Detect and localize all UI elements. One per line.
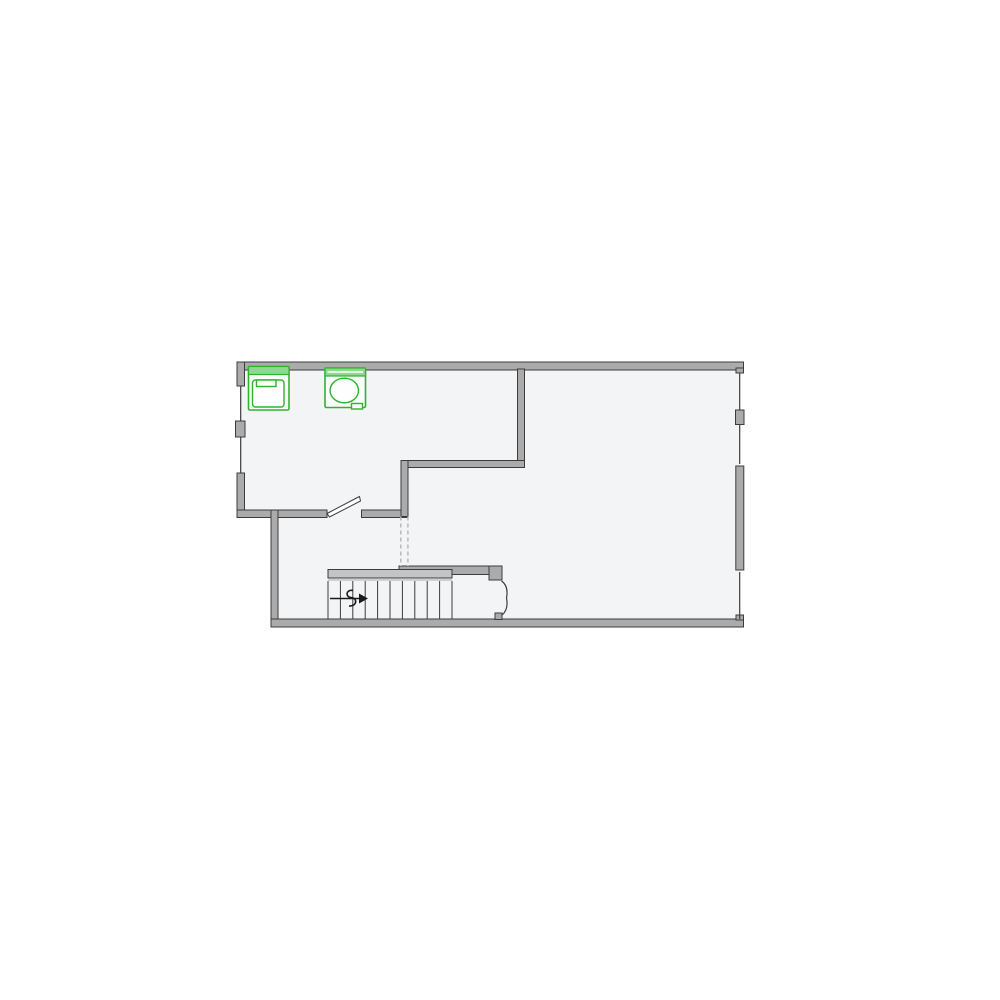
lower-left-wall: [271, 510, 278, 627]
floor-plan-canvas: [0, 0, 1000, 1000]
washer-control-strip: [249, 367, 290, 375]
stair-stringer-bar: [328, 570, 452, 579]
divider-wall-horizontal: [401, 461, 525, 468]
right-wall-long-block: [736, 466, 744, 570]
washing-machine-drum: [330, 378, 358, 403]
laundry-bottom-wall-left: [237, 510, 327, 518]
left-wall-upper: [237, 362, 245, 386]
left-window-pier: [236, 421, 246, 437]
bottom-wall: [271, 619, 744, 627]
double-door-top-jamb: [489, 566, 502, 580]
washer-dispenser: [257, 380, 277, 387]
divider-wall-vertical: [518, 369, 525, 462]
washing-machine[interactable]: [325, 368, 366, 409]
stub-wall: [401, 461, 408, 517]
floor-area: [240, 366, 740, 623]
right-wall-top-stub: [736, 368, 744, 373]
right-window-pier: [736, 410, 745, 425]
top-wall: [237, 362, 744, 370]
floor-plan-drawing: [0, 0, 1000, 1000]
washing-machine-foot: [352, 404, 363, 410]
washer[interactable]: [249, 367, 290, 411]
double-door-bottom-jamb: [495, 613, 502, 620]
floor-polygon: [240, 366, 740, 623]
